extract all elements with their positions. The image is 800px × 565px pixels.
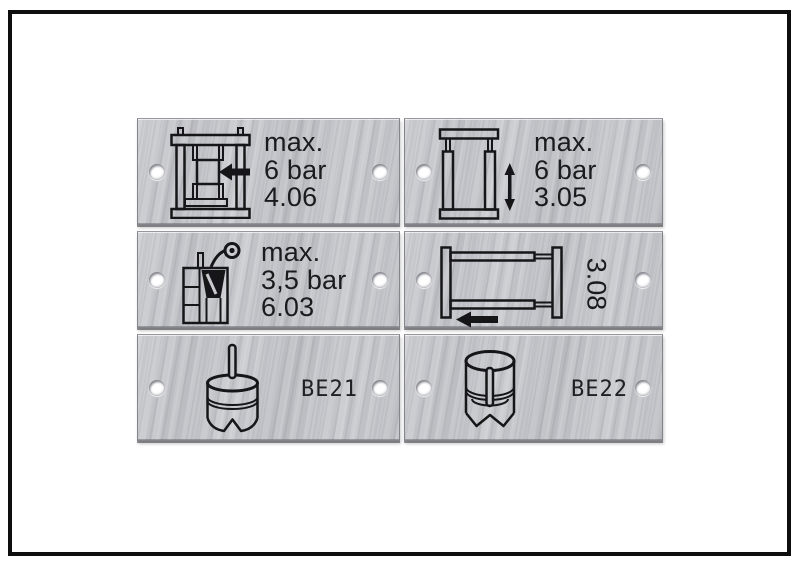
plate-number-rotated: 3.08 bbox=[581, 258, 612, 311]
vertical-clamp-double-arrow-icon bbox=[433, 128, 517, 220]
plate-BE21: BE21 bbox=[137, 334, 400, 441]
mounting-hole-left bbox=[416, 164, 432, 180]
plate-3-08: 3.08 bbox=[404, 231, 663, 328]
bellows-suction-pin-icon bbox=[204, 343, 260, 439]
max-label: max. bbox=[264, 129, 327, 157]
press-clamp-horizontal-arrow-icon bbox=[168, 127, 253, 219]
mounting-hole-right bbox=[372, 272, 388, 288]
plate-BE22: BE22 bbox=[404, 334, 663, 441]
max-label: max. bbox=[534, 129, 597, 157]
mounting-hole-right bbox=[635, 380, 651, 396]
plate-number: 4.06 bbox=[264, 184, 327, 212]
max-label: max. bbox=[261, 239, 346, 267]
plate-number: 6.03 bbox=[261, 294, 346, 322]
photo-canvas: max. 6 bar 4.06 max. 6 bar bbox=[0, 0, 800, 565]
open-cup-pin-icon bbox=[461, 349, 519, 433]
horizontal-slide-left-arrow-icon bbox=[438, 246, 563, 328]
mounting-hole-right bbox=[635, 164, 651, 180]
mounting-hole-right bbox=[372, 380, 388, 396]
plates-grid: max. 6 bar 4.06 max. 6 bar bbox=[137, 118, 663, 441]
plate-text: max. 6 bar 3.05 bbox=[534, 129, 597, 212]
mounting-hole-right bbox=[635, 272, 651, 288]
mounting-hole-left bbox=[149, 380, 165, 396]
mounting-hole-left bbox=[416, 380, 432, 396]
plate-number: 3.05 bbox=[534, 184, 597, 212]
glue-applicator-nozzle-icon bbox=[182, 241, 248, 329]
plate-text: max. 3,5 bar 6.03 bbox=[261, 239, 346, 322]
mounting-hole-left bbox=[149, 164, 165, 180]
plate-code: BE21 bbox=[301, 377, 358, 402]
pressure-value: 6 bar bbox=[534, 157, 597, 185]
pressure-value: 3,5 bar bbox=[261, 267, 346, 295]
plate-6-03: max. 3,5 bar 6.03 bbox=[137, 231, 400, 328]
plate-text: max. 6 bar 4.06 bbox=[264, 129, 327, 212]
mounting-hole-right bbox=[372, 164, 388, 180]
mounting-hole-left bbox=[416, 272, 432, 288]
plate-4-06: max. 6 bar 4.06 bbox=[137, 118, 400, 225]
plate-code: BE22 bbox=[571, 377, 628, 402]
pressure-value: 6 bar bbox=[264, 157, 327, 185]
mounting-hole-left bbox=[149, 272, 165, 288]
plate-3-05: max. 6 bar 3.05 bbox=[404, 118, 663, 225]
